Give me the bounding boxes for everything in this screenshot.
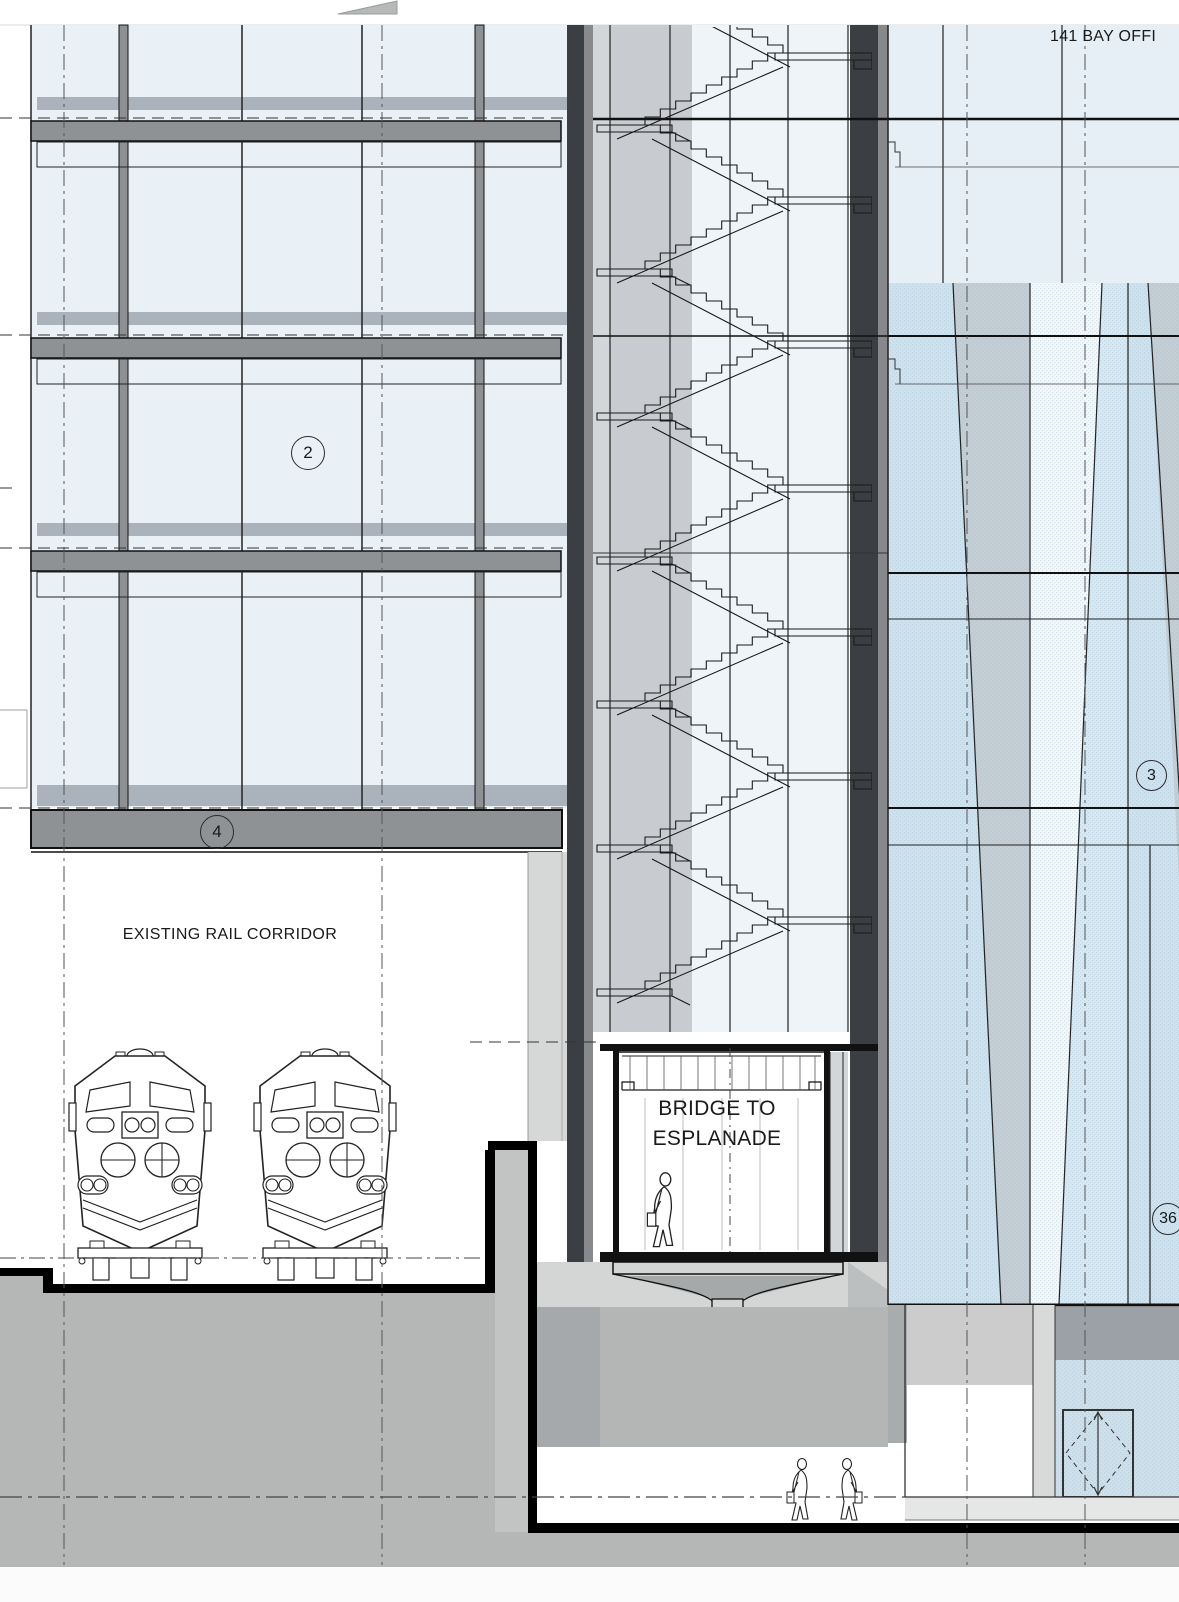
drawing-title: 141 BAY OFFI	[1050, 28, 1156, 46]
bridge-label: BRIDGE TO ESPLANADE	[617, 1094, 817, 1155]
floor-slab-band	[31, 551, 561, 571]
concourse-walkway	[537, 1447, 888, 1523]
floor-slab-band	[31, 121, 561, 141]
storefront-header	[1055, 1307, 1179, 1360]
right-ground-floor	[888, 1305, 1179, 1520]
floor-slab-band	[31, 338, 561, 358]
grid-bubble-36: 36	[1152, 1203, 1179, 1235]
train-1	[69, 1049, 211, 1280]
building-base-band	[31, 810, 562, 848]
grid-bubble-4: 4	[200, 815, 234, 849]
stair-tower-left-wall	[567, 25, 584, 1262]
rail-corridor-label: EXISTING RAIL CORRIDOR	[90, 926, 370, 944]
architectural-section-drawing: 141 BAY OFFI EXISTING RAIL CORRIDOR BRID…	[0, 0, 1179, 1602]
section-linework	[0, 0, 1179, 1602]
grid-bubble-2: 2	[291, 436, 325, 470]
bridge-label-line2: ESPLANADE	[617, 1124, 817, 1154]
grid-bubble-3: 3	[1136, 760, 1167, 791]
right-tower	[888, 25, 1179, 1305]
train-2	[254, 1049, 396, 1280]
fritted-glass-texture	[888, 283, 1179, 1305]
bridge-label-line1: BRIDGE TO	[617, 1094, 817, 1124]
bridge-pier-flange	[613, 1262, 843, 1274]
sidewalk	[905, 1497, 1179, 1520]
concourse-below-bridge	[537, 1262, 888, 1523]
